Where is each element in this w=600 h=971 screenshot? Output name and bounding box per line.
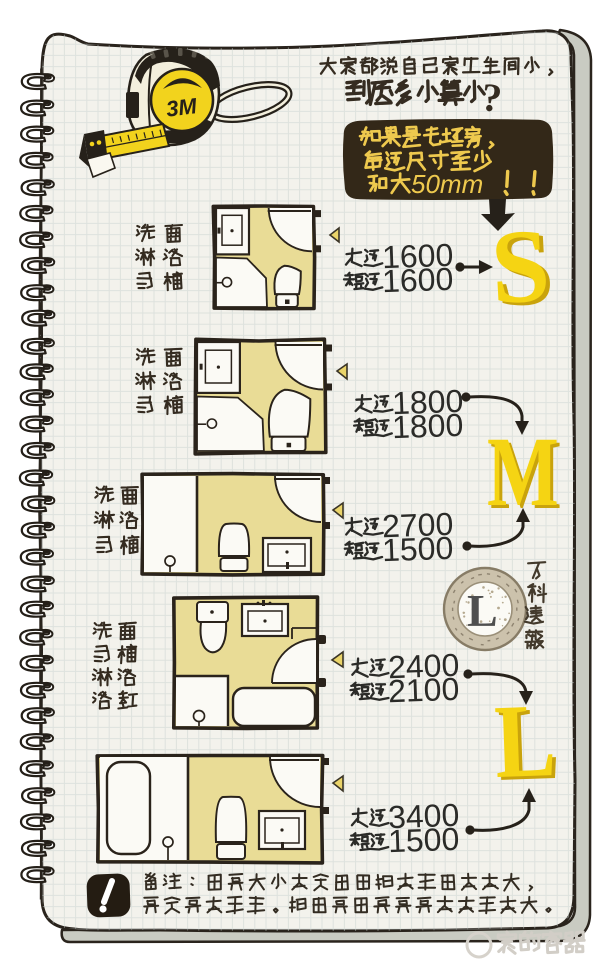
svg-text:1600: 1600 (381, 261, 453, 299)
svg-text:L: L (467, 585, 498, 636)
svg-text:50mm: 50mm (411, 169, 483, 199)
svg-text:3M: 3M (165, 93, 199, 122)
svg-text:1800: 1800 (391, 407, 463, 445)
svg-text:1500: 1500 (381, 530, 453, 568)
svg-text:S: S (488, 206, 552, 326)
svg-text:1500: 1500 (387, 821, 459, 859)
svg-text:2100: 2100 (387, 671, 459, 709)
